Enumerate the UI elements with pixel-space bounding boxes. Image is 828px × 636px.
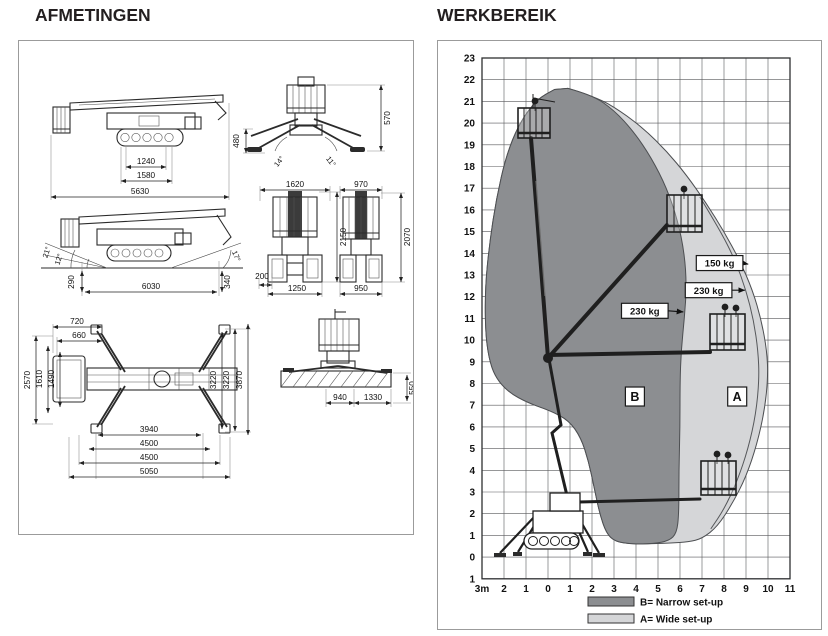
y-tick-label: 20 [464, 119, 476, 130]
legend-swatch [588, 614, 634, 623]
dim-3220-outer: 3220 [222, 370, 231, 389]
dim-3870: 3870 [235, 370, 244, 389]
legend-item: B= Narrow set-up [588, 597, 723, 609]
dim-940: 940 [333, 393, 347, 402]
y-tick-label: 0 [469, 553, 475, 564]
basket-top [518, 94, 555, 138]
svg-text:A: A [733, 390, 742, 404]
svg-text:230 kg: 230 kg [630, 306, 660, 317]
dim-2070: 2070 [403, 227, 412, 246]
y-tick-label: 1 [469, 531, 475, 542]
y-tick-label: 5 [469, 444, 475, 455]
working-range-chart: 150 kg230 kg230 kgBA 2322212019181716151… [438, 41, 821, 629]
dim-1620: 1620 [286, 180, 305, 189]
x-tick-label: 7 [699, 584, 705, 595]
drawing-rear-view-outriggers: 570 480 14° 11° [232, 77, 392, 169]
svg-text:B: B [630, 390, 639, 404]
dim-1240: 1240 [137, 157, 156, 166]
dim-5630: 5630 [131, 187, 150, 196]
y-tick-label: 9 [469, 357, 475, 368]
drawing-plan-view: 720 660 2570 1610 1490 3220 3220 3870 [23, 317, 251, 479]
x-tick-label: 8 [721, 584, 727, 595]
x-tick-label: 10 [762, 584, 774, 595]
dimensions-panel: 1240 1580 5630 570 4 [18, 40, 414, 535]
dim-1250: 1250 [288, 284, 307, 293]
dim-1490: 1490 [47, 369, 56, 388]
x-tick-label: 3 [611, 584, 617, 595]
y-tick-label: 22 [464, 75, 476, 86]
dim-3940: 3940 [140, 425, 159, 434]
legend-swatch [588, 597, 634, 606]
dim-angle-12: 12° [53, 252, 65, 265]
legend-label: A= Wide set-up [640, 615, 712, 626]
x-tick-label: 1 [567, 584, 573, 595]
y-tick-label: 14 [464, 249, 476, 260]
dim-4500-outer: 4500 [140, 453, 159, 462]
y-tick-label: 17 [464, 184, 476, 195]
x-tick-label: 2 [501, 584, 507, 595]
legend-item: A= Wide set-up [588, 614, 712, 626]
y-tick-label: 6 [469, 422, 475, 433]
drawing-slab-view: 940 1330 550 [281, 309, 413, 407]
region-label-B: B [625, 387, 644, 406]
y-tick-label: 3 [469, 488, 475, 499]
legend: B= Narrow set-upA= Wide set-up [588, 597, 723, 626]
working-range-panel: 150 kg230 kg230 kgBA 2322212019181716151… [437, 40, 822, 630]
y-tick-label: 15 [464, 227, 476, 238]
y-tick-label: 16 [464, 205, 476, 216]
x-tick-label: 5 [655, 584, 661, 595]
page: AFMETINGEN WERKBEREIK [0, 0, 828, 636]
dim-1330: 1330 [364, 393, 383, 402]
y-tick-label: 7 [469, 401, 475, 412]
dim-4500-inner: 4500 [140, 439, 159, 448]
x-tick-label: 11 [785, 584, 796, 595]
drawing-side-view-stowed: 1240 1580 5630 [51, 95, 229, 200]
dim-660: 660 [72, 331, 86, 340]
dim-angle-17: 17° [230, 249, 243, 263]
svg-text:230 kg: 230 kg [694, 286, 724, 297]
dimensions-drawing: 1240 1580 5630 570 4 [19, 41, 413, 534]
region-label-A: A [728, 387, 747, 406]
dim-1580: 1580 [137, 171, 156, 180]
y-tick-label: 2 [469, 509, 475, 520]
dim-480: 480 [232, 134, 241, 148]
svg-text:150 kg: 150 kg [705, 259, 735, 270]
y-tick-label: 11 [464, 314, 475, 325]
left-panel-title: AFMETINGEN [35, 5, 151, 26]
dim-2570: 2570 [23, 370, 32, 389]
y-tick-label: 10 [464, 336, 476, 347]
x-tick-label: 4 [633, 584, 639, 595]
legend-label: B= Narrow set-up [640, 598, 723, 609]
dim-3220-inner: 3220 [209, 370, 218, 389]
y-tick-label: 12 [464, 292, 476, 303]
y-tick-label: 19 [464, 140, 476, 151]
dim-290: 290 [67, 275, 76, 289]
dim-340: 340 [223, 275, 232, 289]
capacity-label: 150 kg [696, 256, 748, 271]
x-tick-label: 9 [743, 584, 749, 595]
drawing-side-view-grade: 21° 12° 17° 290 6030 340 [41, 209, 243, 296]
y-tick-label: 13 [464, 271, 476, 282]
x-tick-label: 2 [589, 584, 595, 595]
x-tick-label: 0 [545, 584, 551, 595]
y-tick-label: 18 [464, 162, 476, 173]
x-tick-label: 3m [475, 584, 490, 595]
x-tick-label: 6 [677, 584, 683, 595]
y-tick-label: 21 [464, 97, 476, 108]
y-tick-label: 4 [469, 466, 475, 477]
drawing-front-view-narrow: 970 2070 950 [340, 180, 412, 297]
dim-1610: 1610 [35, 369, 44, 388]
y-tick-label: 8 [469, 379, 475, 390]
dim-angle-11: 11° [324, 154, 338, 168]
dim-950: 950 [354, 284, 368, 293]
dim-angle-21: 21° [41, 245, 53, 258]
x-tick-label: 1 [523, 584, 529, 595]
dim-5050: 5050 [140, 467, 159, 476]
dim-720: 720 [70, 317, 84, 326]
drawing-front-view-wide: 1620 2150 200 1250 [255, 180, 348, 297]
dim-550: 550 [408, 381, 413, 395]
right-panel-title: WERKBEREIK [437, 5, 557, 26]
dim-570: 570 [383, 111, 392, 125]
dim-6030: 6030 [142, 282, 161, 291]
boom-pivot [543, 353, 553, 363]
y-tick-label: 23 [464, 54, 476, 65]
dim-200: 200 [255, 272, 269, 281]
dim-970: 970 [354, 180, 368, 189]
dim-angle-14: 14° [272, 154, 286, 168]
